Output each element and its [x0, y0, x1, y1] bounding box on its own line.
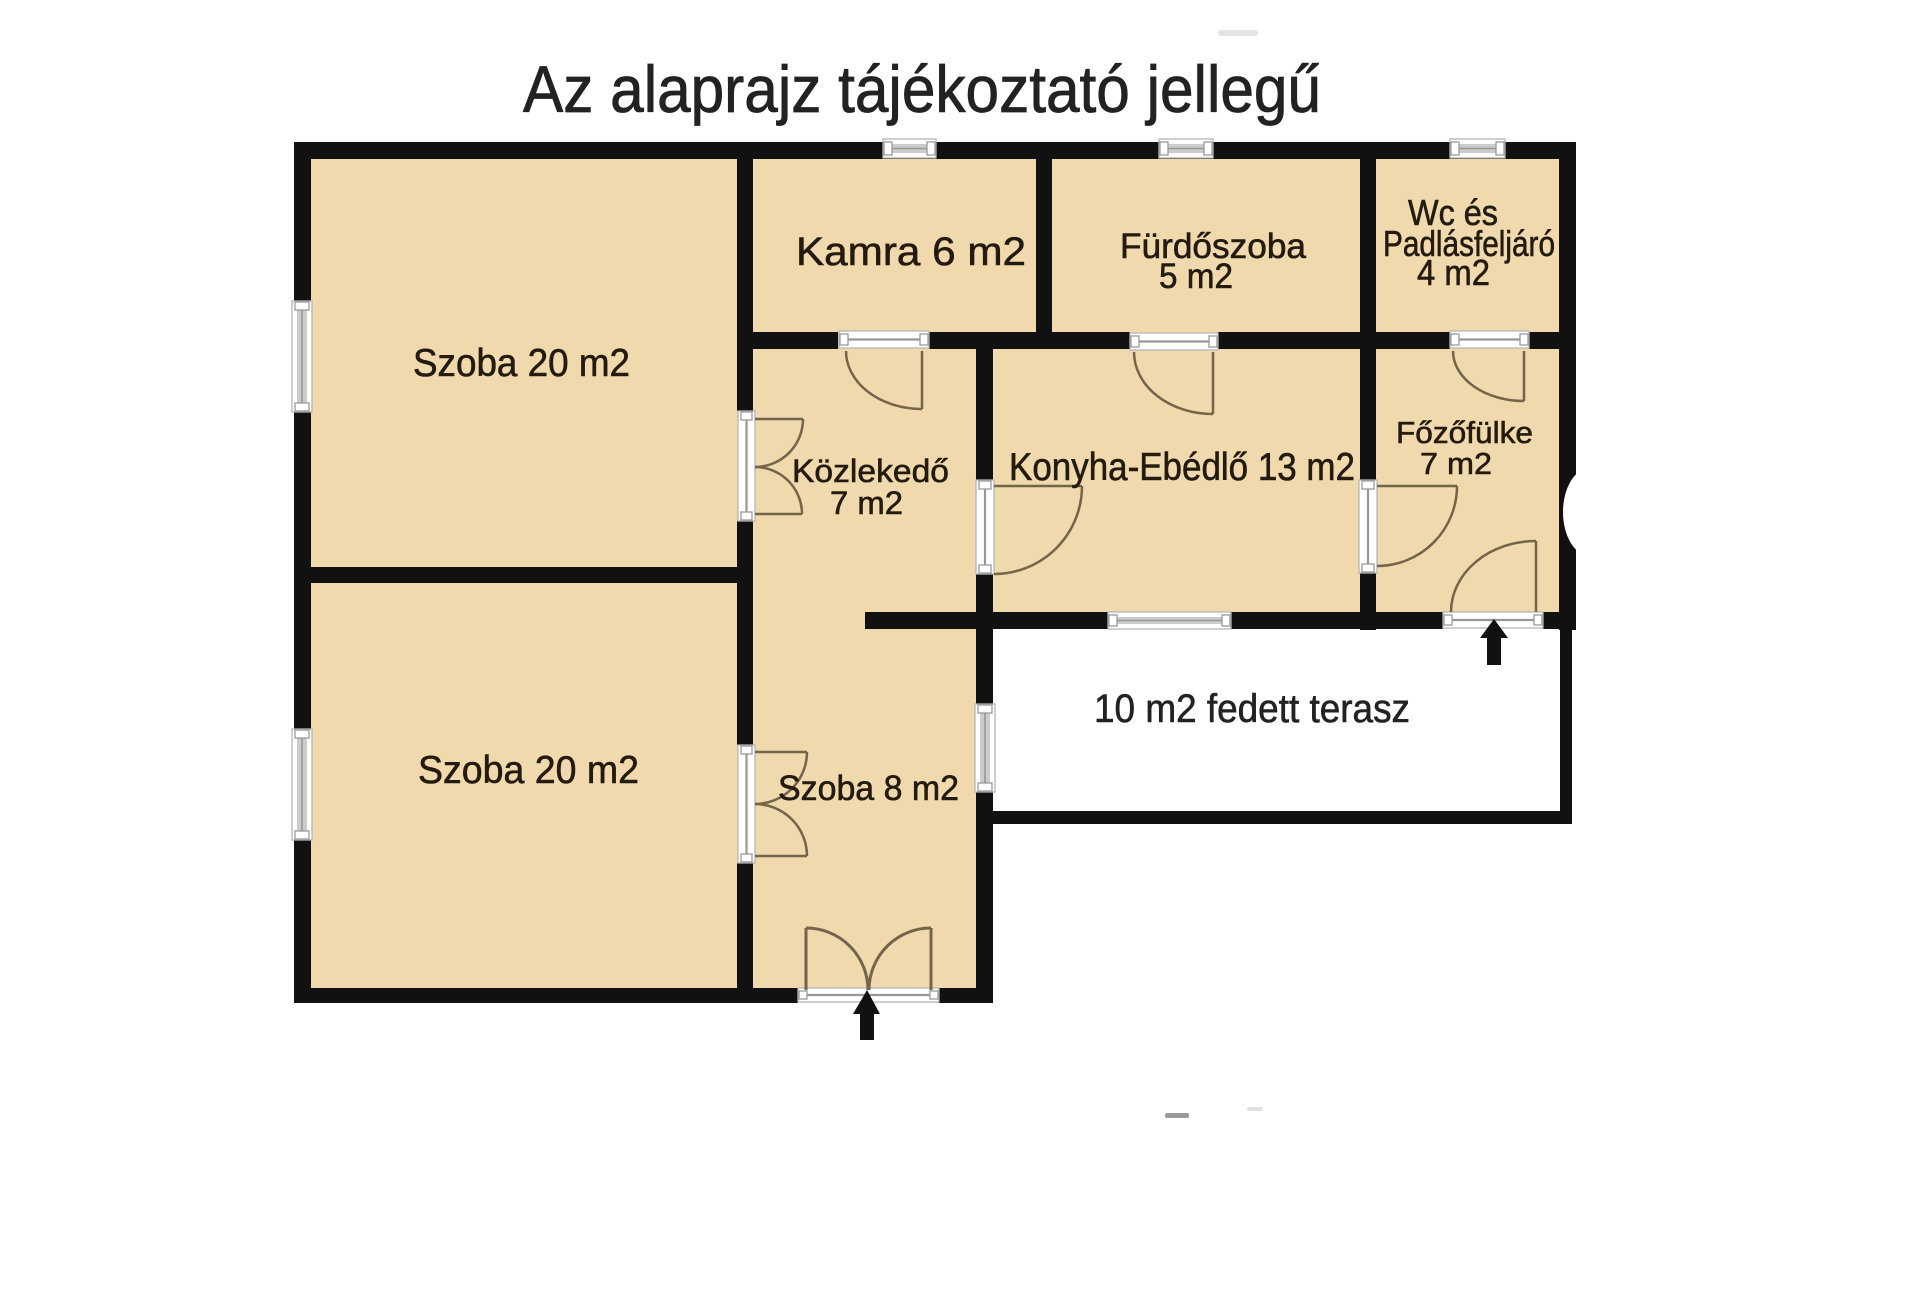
svg-text:Szoba 20 m2: Szoba 20 m2: [413, 342, 630, 385]
svg-text:4 m2: 4 m2: [1417, 252, 1490, 293]
svg-text:Kamra 6 m2: Kamra 6 m2: [796, 230, 1026, 274]
svg-text:7 m2: 7 m2: [1420, 446, 1492, 481]
svg-text:Szoba 20 m2: Szoba 20 m2: [418, 749, 639, 792]
svg-text:Az alaprajz tájékoztató jelleg: Az alaprajz tájékoztató jellegű: [523, 52, 1321, 126]
svg-text:Főzőfülke: Főzőfülke: [1396, 415, 1533, 450]
svg-text:Konyha-Ebédlő 13 m2: Konyha-Ebédlő 13 m2: [1009, 446, 1355, 489]
svg-text:Közlekedő: Közlekedő: [792, 453, 949, 489]
svg-text:10 m2 fedett terasz: 10 m2 fedett terasz: [1094, 687, 1410, 731]
svg-text:5 m2: 5 m2: [1159, 257, 1233, 296]
svg-text:7 m2: 7 m2: [830, 485, 903, 521]
svg-text:Szoba 8 m2: Szoba 8 m2: [778, 769, 959, 808]
